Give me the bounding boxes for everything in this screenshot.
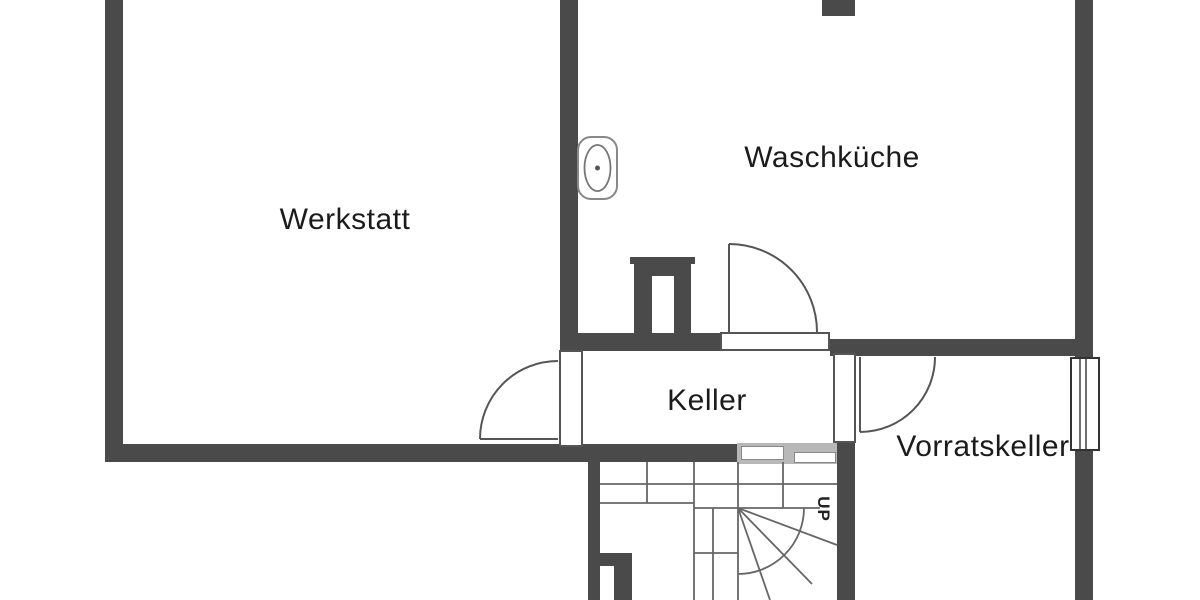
floor-plan: Werkstatt Waschküche Keller Vorratskelle… (0, 0, 1200, 600)
room-label-waschkueche: Waschküche (744, 141, 920, 175)
window-right-wall (1071, 358, 1099, 450)
room-label-werkstatt: Werkstatt (280, 203, 411, 237)
room-label-keller: Keller (667, 384, 747, 418)
door-waschkueche-swing (729, 244, 817, 332)
stair-direction-label: UP (813, 496, 833, 522)
plan-linework (0, 0, 1200, 600)
room-label-vorratskeller: Vorratskeller (896, 430, 1069, 464)
door-vorratskeller-swing (860, 357, 935, 432)
staircase (600, 462, 837, 600)
wash-basin (578, 137, 617, 199)
door-werkstatt-swing (480, 361, 558, 439)
